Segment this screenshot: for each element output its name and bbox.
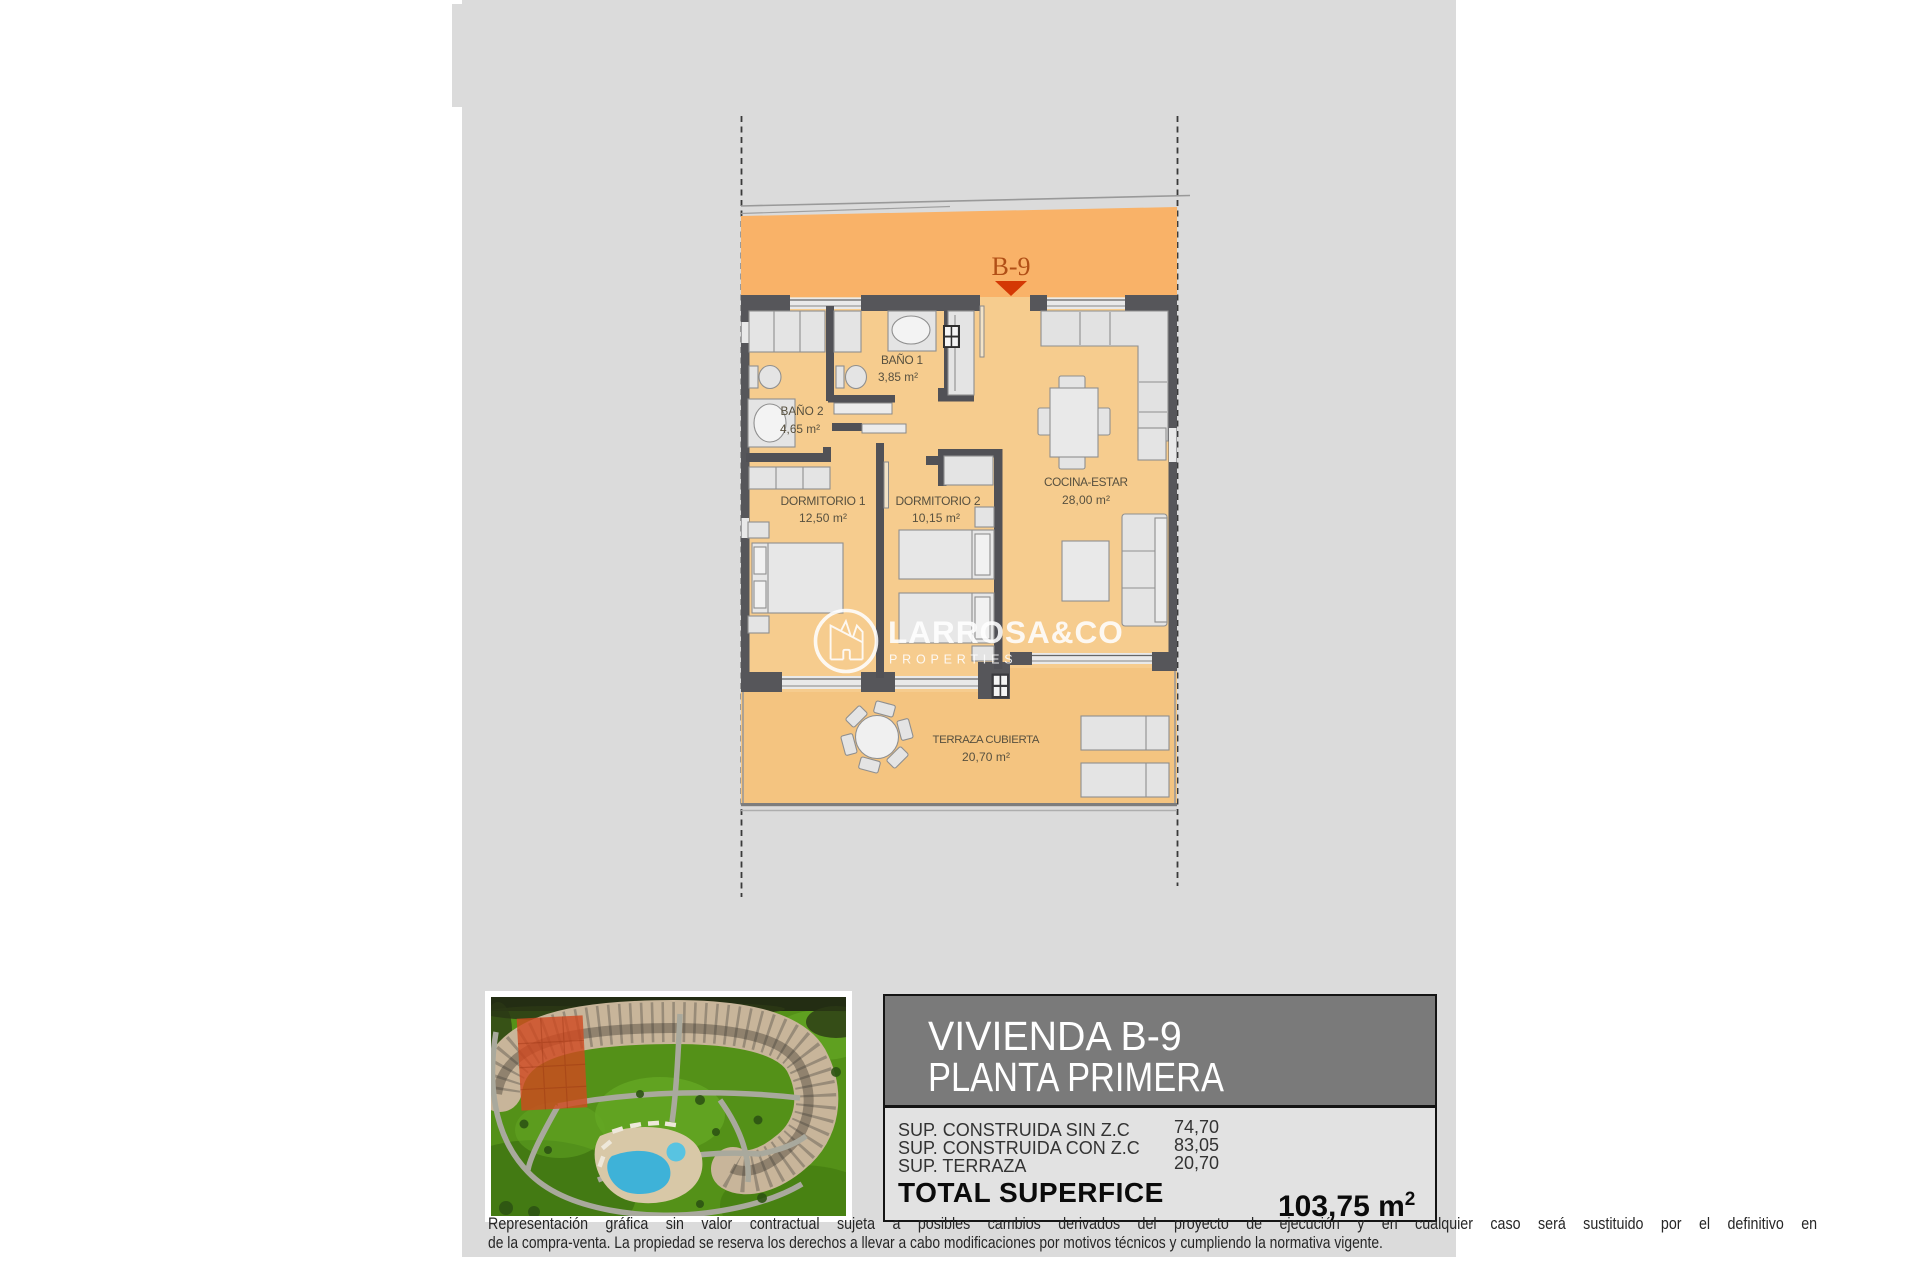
svg-text:PROPERTIES: PROPERTIES — [889, 653, 1017, 667]
svg-text:3,85 m²: 3,85 m² — [878, 370, 918, 384]
svg-text:12,50 m²: 12,50 m² — [799, 511, 847, 525]
svg-text:BAÑO 2: BAÑO 2 — [781, 404, 824, 418]
svg-text:B-9: B-9 — [992, 252, 1031, 281]
svg-text:TERRAZA CUBIERTA: TERRAZA CUBIERTA — [933, 734, 1040, 746]
svg-text:COCINA-ESTAR: COCINA-ESTAR — [1044, 475, 1128, 489]
svg-text:28,00 m²: 28,00 m² — [1062, 493, 1110, 507]
svg-text:4,65 m²: 4,65 m² — [780, 422, 820, 436]
svg-text:DORMITORIO 2: DORMITORIO 2 — [896, 494, 981, 508]
svg-text:DORMITORIO 1: DORMITORIO 1 — [781, 494, 866, 508]
svg-text:20,70 m²: 20,70 m² — [962, 750, 1010, 764]
svg-text:BAÑO 1: BAÑO 1 — [881, 353, 923, 367]
svg-text:10,15 m²: 10,15 m² — [912, 511, 960, 525]
svg-text:LARROSA&CO: LARROSA&CO — [888, 614, 1124, 650]
